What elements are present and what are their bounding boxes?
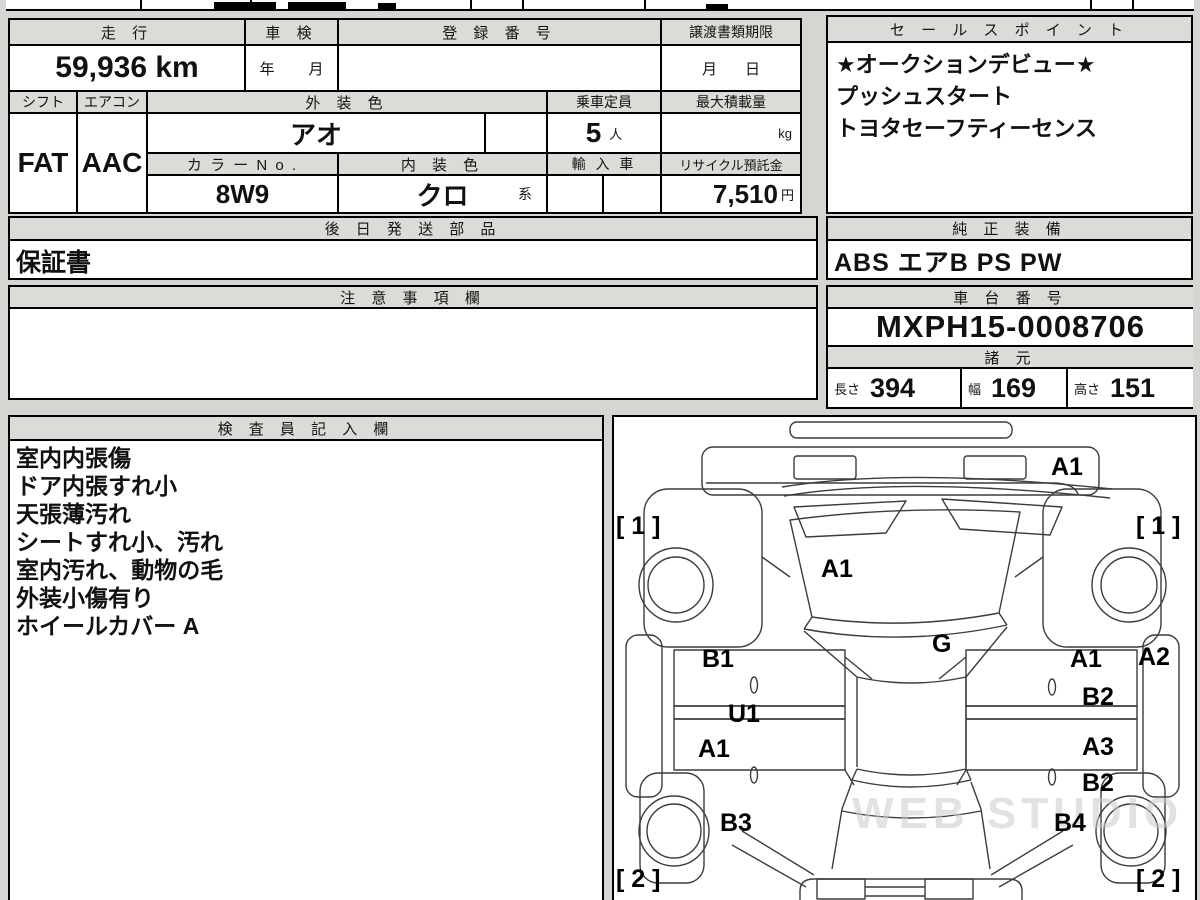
inspection-year-label: 年 xyxy=(259,58,274,79)
spec-length-label: 長さ xyxy=(834,379,860,398)
damage-code-label: G xyxy=(932,630,951,659)
damage-code-label: B2 xyxy=(1082,683,1114,712)
deadline-day-label: 日 xyxy=(745,58,760,79)
import-car-cell-1 xyxy=(548,176,602,212)
shift-header: シフト xyxy=(10,92,76,112)
import-car-cell-2 xyxy=(604,176,660,212)
damage-code-label: [ 1 ] xyxy=(616,512,660,541)
recycle-deposit-value: 7,510 円 xyxy=(662,176,800,212)
aircon-value: AAC xyxy=(78,114,146,212)
damage-code-label: A1 xyxy=(1070,645,1102,674)
recycle-deposit-number: 7,510 xyxy=(713,179,778,210)
shift-value: FAT xyxy=(10,114,76,212)
spec-width-label: 幅 xyxy=(968,379,981,398)
inspection-value: 年 月 xyxy=(246,46,337,90)
damage-code-label: [ 1 ] xyxy=(1136,512,1180,541)
recycle-deposit-header: リサイクル預託金 xyxy=(662,154,800,174)
inspector-notes-box: 検 査 員 記 入 欄 室内内張傷 ドア内張すれ小 天張薄汚れ シートすれ小、汚… xyxy=(8,415,604,900)
inspection-header: 車 検 xyxy=(246,20,337,44)
damage-code-label: B3 xyxy=(720,809,752,838)
damage-code-label: B2 xyxy=(1082,769,1114,798)
exterior-color-header: 外 装 色 xyxy=(148,92,546,112)
color-no-header: カ ラ ー N o . xyxy=(148,154,337,174)
later-parts-value: 保証書 xyxy=(10,241,816,281)
transfer-deadline-header: 譲渡書類期限 xyxy=(662,20,800,44)
spec-length: 長さ 394 xyxy=(828,369,960,407)
max-load-header: 最大積載量 xyxy=(662,92,800,112)
notes-value xyxy=(10,309,816,313)
interior-color-header: 内 装 色 xyxy=(339,154,546,174)
damage-code-label: A3 xyxy=(1082,733,1114,762)
genuine-equipment-value: ABS エアB PS PW xyxy=(828,241,1191,281)
damage-code-label: [ 2 ] xyxy=(616,865,660,894)
recycle-deposit-unit: 円 xyxy=(781,185,794,204)
inspector-header: 検 査 員 記 入 欄 xyxy=(10,417,602,441)
capacity-value: 5 人 xyxy=(548,114,660,152)
later-parts-header: 後 日 発 送 部 品 xyxy=(10,218,816,241)
aircon-header: エアコン xyxy=(78,92,146,112)
inspector-notes: 室内内張傷 ドア内張すれ小 天張薄汚れ シートすれ小、汚れ 室内汚れ、動物の毛 … xyxy=(10,441,602,643)
exterior-color-extra xyxy=(486,114,546,152)
spec-length-value: 394 xyxy=(870,373,915,404)
mileage-value: 59,936 km xyxy=(10,46,244,90)
later-parts-box: 後 日 発 送 部 品 保証書 xyxy=(8,216,818,280)
capacity-header: 乗車定員 xyxy=(548,92,660,112)
exterior-color-value: アオ xyxy=(148,114,484,152)
inspection-month-label: 月 xyxy=(309,58,324,79)
spec-height-label: 高さ xyxy=(1074,379,1100,398)
notes-header: 注 意 事 項 欄 xyxy=(10,287,816,309)
damage-code-label: A2 xyxy=(1138,643,1170,672)
capacity-number: 5 xyxy=(586,117,602,149)
spec-height: 高さ 151 xyxy=(1068,369,1193,407)
import-car-header: 輸 入 車 xyxy=(548,154,660,174)
spec-width-value: 169 xyxy=(991,373,1036,404)
sales-point-header: セ ー ル ス ポ イ ン ト xyxy=(828,17,1191,43)
deadline-month-label: 月 xyxy=(702,58,717,79)
max-load-value: kg xyxy=(662,114,800,152)
damage-code-label: U1 xyxy=(728,700,760,729)
spec-height-value: 151 xyxy=(1110,373,1155,404)
damage-code-label: B1 xyxy=(702,645,734,674)
chassis-value: MXPH15-0008706 xyxy=(828,309,1193,345)
interior-color-suffix: 系 xyxy=(518,184,532,204)
registration-header: 登 録 番 号 xyxy=(339,20,660,44)
interior-color-name: クロ xyxy=(416,176,468,212)
spec-width: 幅 169 xyxy=(962,369,1066,407)
damage-code-label: A1 xyxy=(698,735,730,764)
damage-code-label: [ 2 ] xyxy=(1136,865,1180,894)
watermark-text: WEB STUDIO PRO xyxy=(852,789,1200,839)
damage-code-label: A1 xyxy=(1051,453,1083,482)
vehicle-info-table: 走 行 車 検 登 録 番 号 譲渡書類期限 59,936 km 年 月 月 日… xyxy=(8,18,802,214)
genuine-equipment-box: 純 正 装 備 ABS エアB PS PW xyxy=(826,216,1193,280)
max-load-unit: kg xyxy=(778,126,792,141)
capacity-unit: 人 xyxy=(609,124,622,143)
specs-header: 諸 元 xyxy=(828,347,1193,367)
damage-code-label: A1 xyxy=(821,555,853,584)
registration-value xyxy=(339,46,660,90)
color-no-value: 8W9 xyxy=(148,176,337,212)
sales-point-lines: ★オークションデビュー★ プッシュスタート トヨタセーフティーセンス xyxy=(828,43,1191,151)
auction-sheet: 走 行 車 検 登 録 番 号 譲渡書類期限 59,936 km 年 月 月 日… xyxy=(0,0,1200,900)
cropped-top-row xyxy=(6,0,1194,12)
sales-point-box: セ ー ル ス ポ イ ン ト ★オークションデビュー★ プッシュスタート トヨ… xyxy=(826,15,1193,214)
damage-diagram: WEB STUDIO PRO A1[ 1 ][ 1 ]A1GB1U1A1B3A1… xyxy=(612,415,1197,900)
chassis-spec-table: 車 台 番 号 MXPH15-0008706 諸 元 長さ 394 幅 169 … xyxy=(826,285,1193,409)
damage-code-label: B4 xyxy=(1054,809,1086,838)
chassis-header: 車 台 番 号 xyxy=(828,287,1193,307)
interior-color-value: クロ 系 xyxy=(339,176,546,212)
transfer-deadline-value: 月 日 xyxy=(662,46,800,90)
mileage-header: 走 行 xyxy=(10,20,244,44)
genuine-equipment-header: 純 正 装 備 xyxy=(828,218,1191,241)
notes-box: 注 意 事 項 欄 xyxy=(8,285,818,400)
